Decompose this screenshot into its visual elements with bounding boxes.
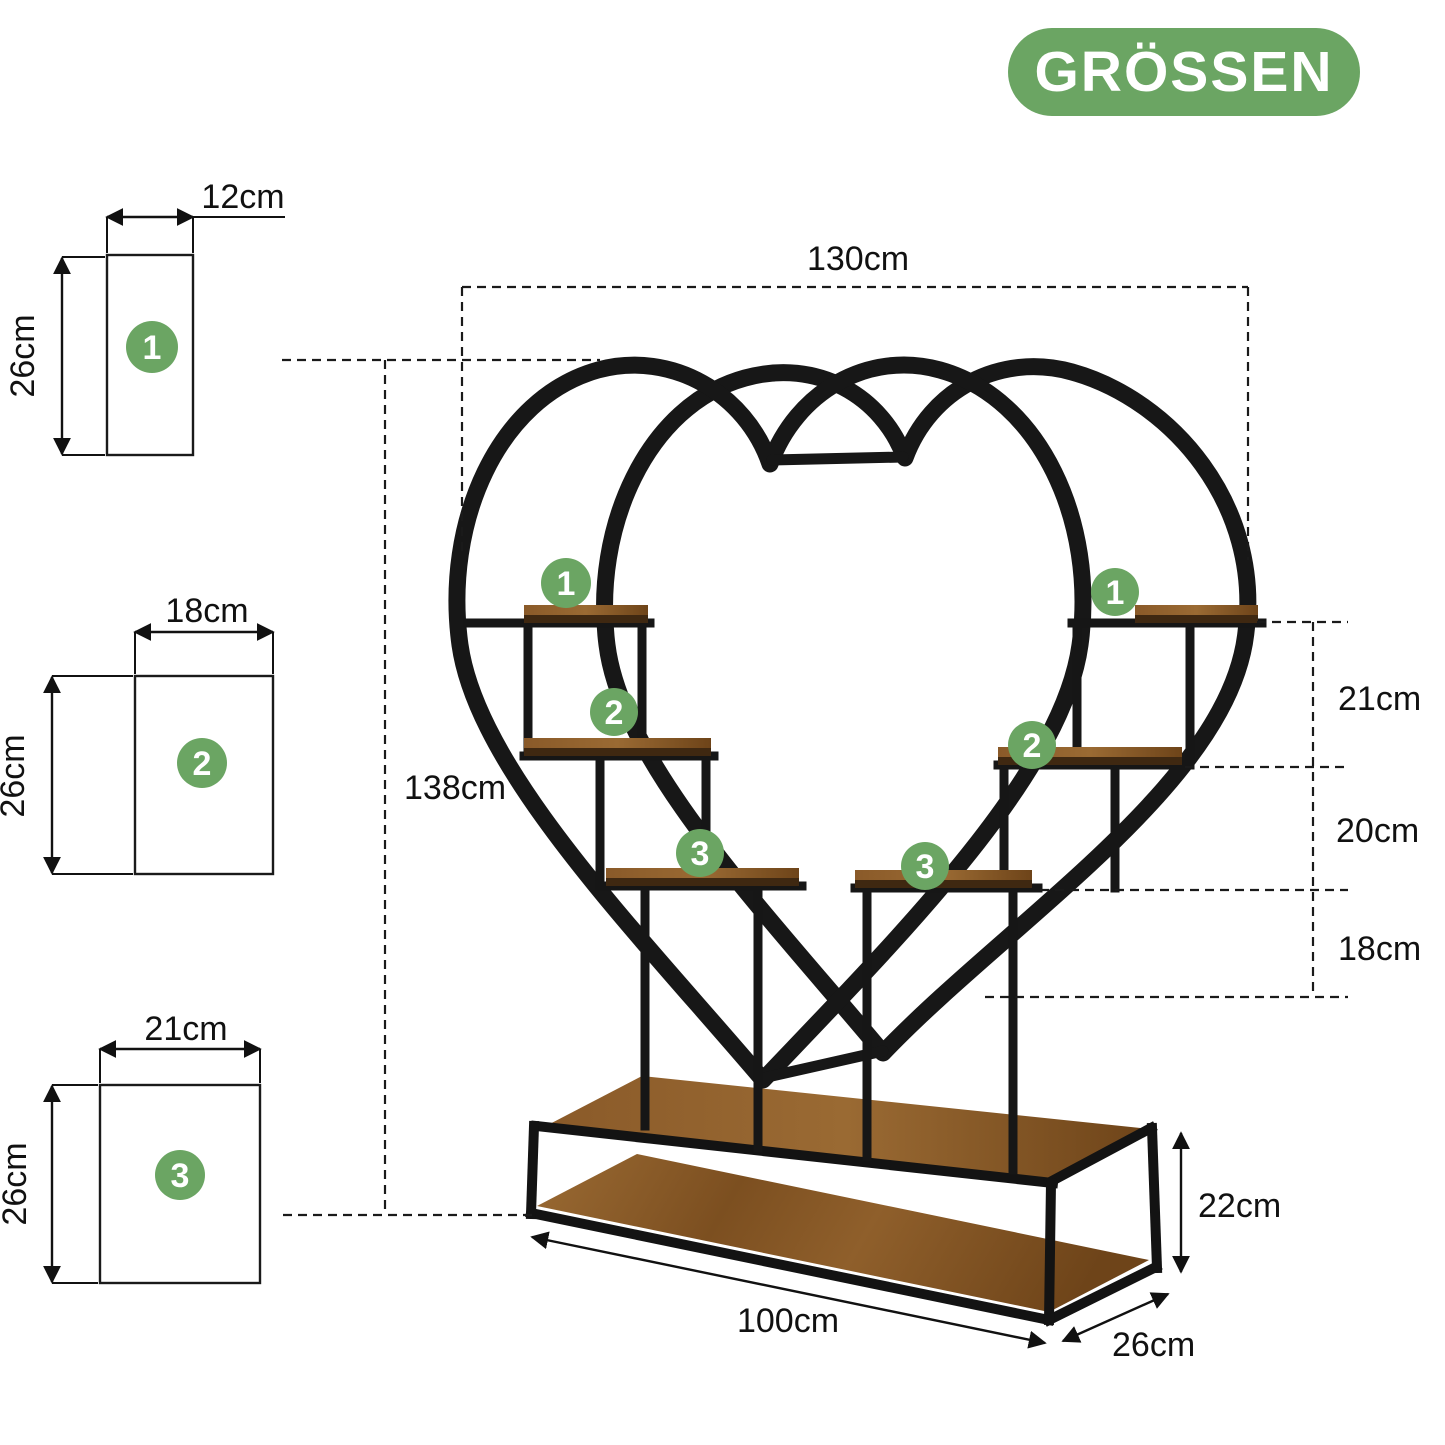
svg-text:3: 3: [691, 835, 710, 873]
diagram3-height-label: 26cm: [0, 1142, 34, 1225]
dim-label-18cm: 18cm: [1338, 930, 1421, 968]
left-shelf-1-wood: [524, 605, 648, 615]
sizes-badge: GRÖSSEN: [1008, 28, 1360, 116]
diagram1-marker: 1: [126, 321, 178, 373]
marker-right-2: 2: [1008, 721, 1056, 769]
dim-height: 138cm: [282, 360, 600, 1215]
diagram3-width-label: 21cm: [144, 1010, 227, 1048]
svg-text:1: 1: [1106, 574, 1125, 612]
dim-label-138cm: 138cm: [404, 769, 506, 807]
heart-frame-back: [605, 367, 1248, 1053]
svg-text:3: 3: [171, 1157, 190, 1195]
marker-right-1: 1: [1091, 568, 1139, 616]
diagram2-width-label: 18cm: [165, 592, 248, 630]
diagram1-height-label: 26cm: [4, 314, 42, 397]
svg-text:1: 1: [143, 329, 162, 367]
svg-text:2: 2: [193, 745, 212, 783]
base-unit: [531, 1076, 1157, 1320]
dim-label-100cm: 100cm: [737, 1302, 839, 1340]
size-diagram-page: 130cm 138cm 21cm 20cm 18cm 100cm 26cm 22…: [0, 0, 1445, 1445]
dim-label-20cm: 20cm: [1336, 812, 1419, 850]
marker-left-3: 3: [676, 829, 724, 877]
diagram1-width-label: 12cm: [201, 178, 284, 216]
svg-text:1: 1: [557, 565, 576, 603]
right-shelf-1-wood: [1135, 605, 1258, 615]
dimension-diagram: 130cm 138cm 21cm 20cm 18cm 100cm 26cm 22…: [0, 0, 1445, 1445]
marker-right-3: 3: [901, 842, 949, 890]
left-shelf-2-wood: [524, 738, 711, 748]
dim-label-22cm: 22cm: [1198, 1187, 1281, 1225]
svg-text:2: 2: [1023, 727, 1042, 765]
marker-left-2: 2: [590, 688, 638, 736]
heart-frame-front: [457, 365, 1083, 1080]
svg-text:3: 3: [916, 848, 935, 886]
marker-left-1: 1: [541, 558, 591, 608]
diagram2-marker: 2: [177, 738, 227, 788]
size-diagram-3: 21cm 26cm 3: [0, 1010, 260, 1283]
sizes-badge-label: GRÖSSEN: [1034, 39, 1333, 105]
dim-label-26cm-depth: 26cm: [1112, 1326, 1195, 1364]
size-diagram-2: 18cm 26cm 2: [0, 592, 273, 874]
size-diagram-1: 12cm 26cm 1: [4, 178, 285, 455]
dim-label-130cm: 130cm: [807, 240, 909, 278]
dim-label-21cm: 21cm: [1338, 680, 1421, 718]
svg-text:2: 2: [605, 694, 624, 732]
diagram2-height-label: 26cm: [0, 734, 32, 817]
diagram3-marker: 3: [155, 1150, 205, 1200]
dim-tier-gaps: 21cm 20cm 18cm: [985, 622, 1421, 997]
